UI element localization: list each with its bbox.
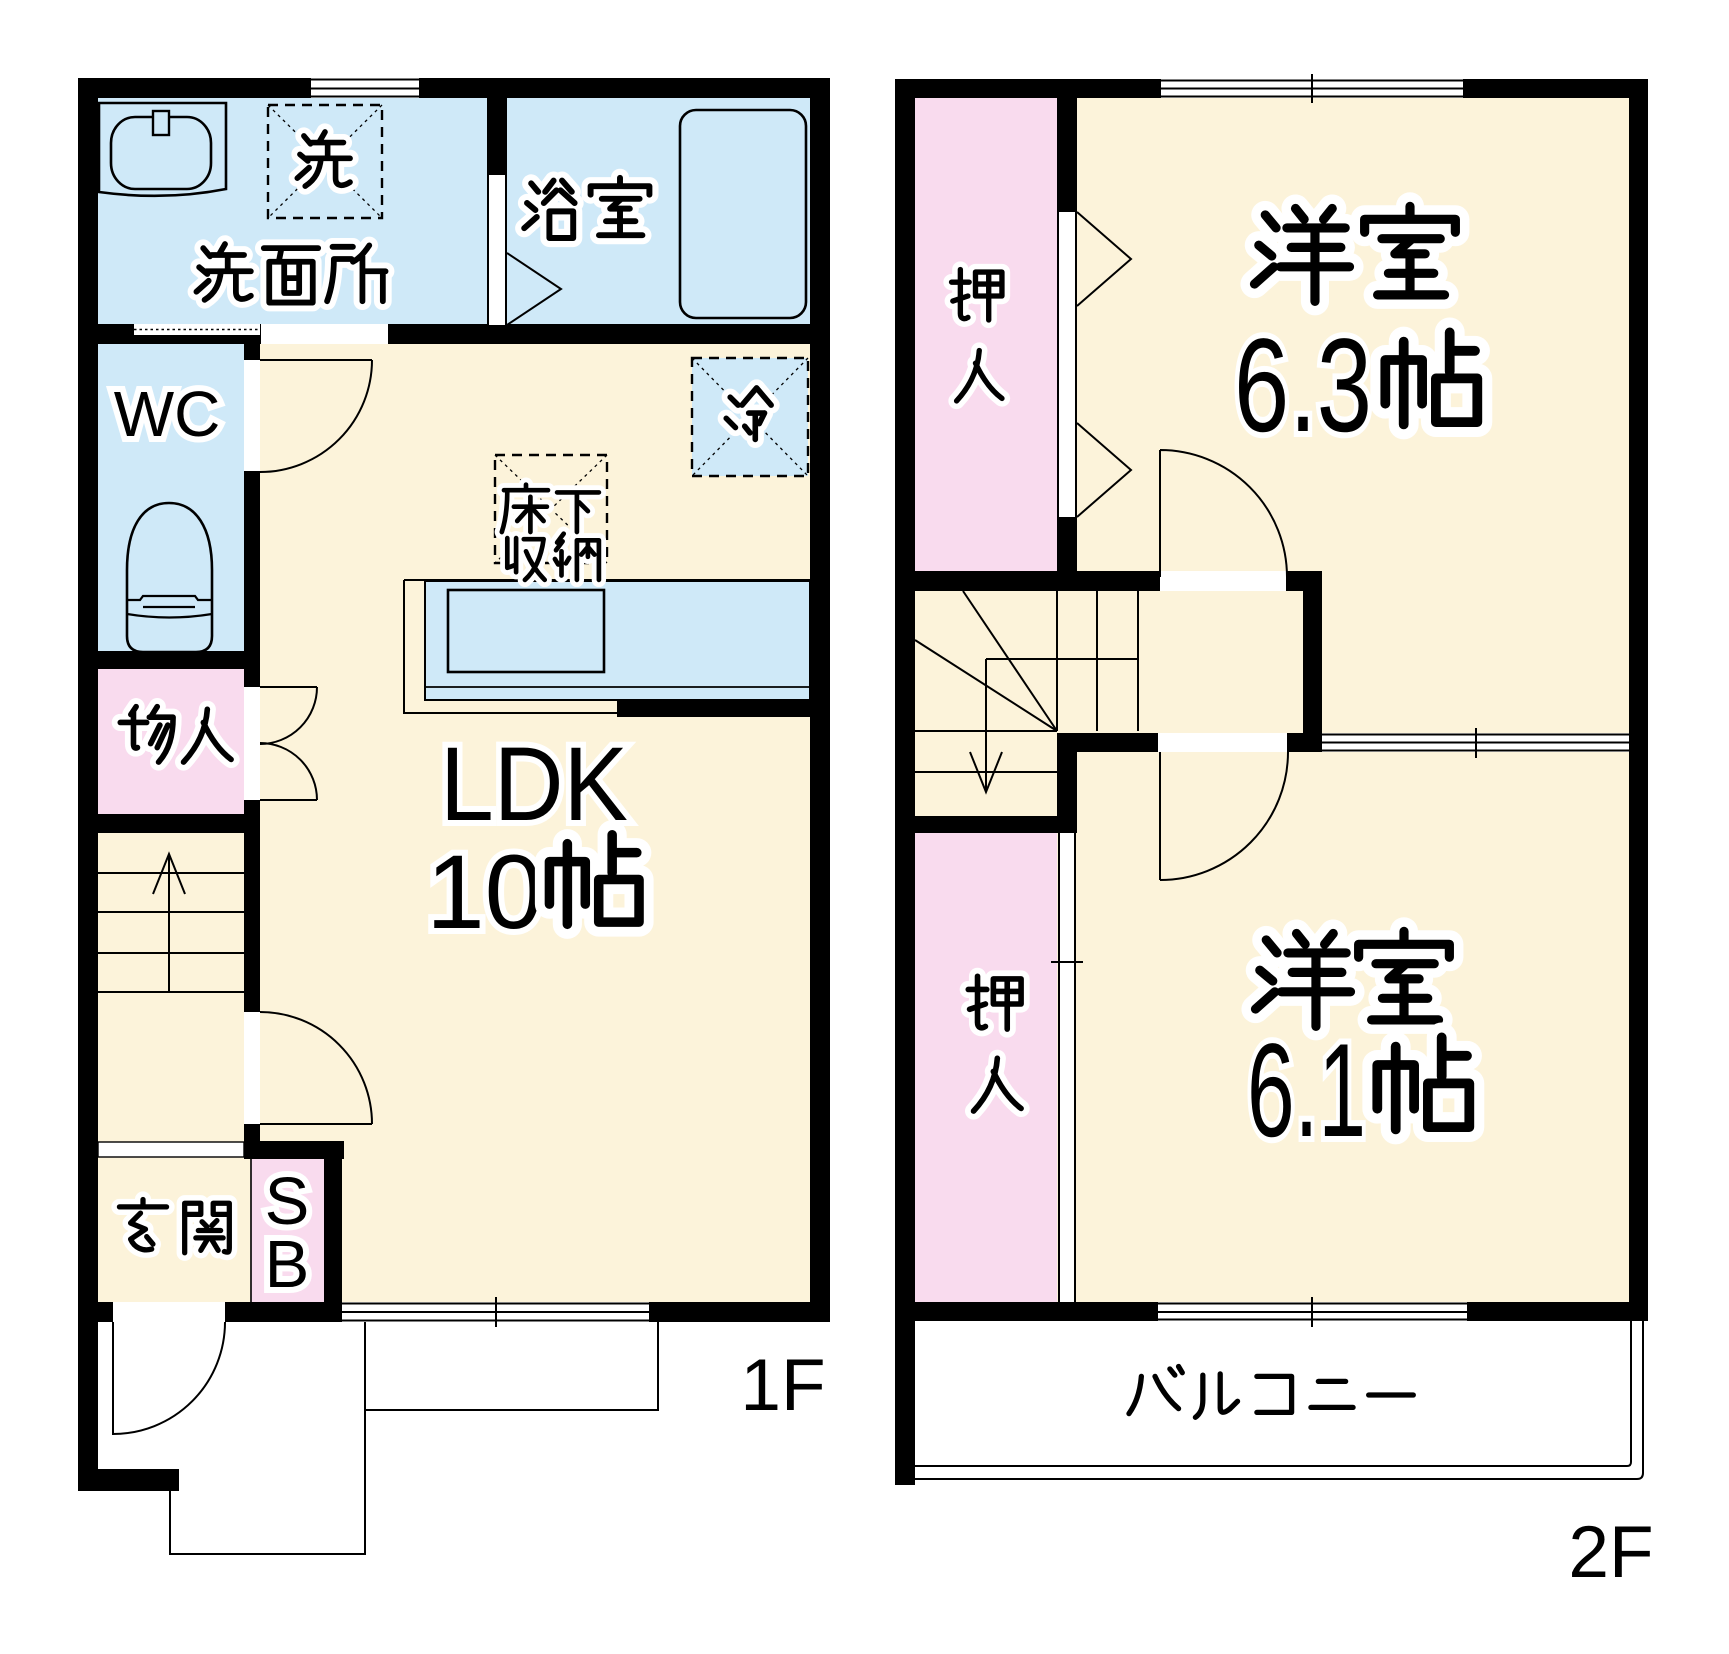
svg-text:LDK: LDK bbox=[440, 726, 628, 843]
svg-text:2F: 2F bbox=[1568, 1512, 1653, 1593]
svg-text:6.1: 6.1 bbox=[1247, 1017, 1366, 1165]
svg-text:10: 10 bbox=[426, 834, 543, 951]
svg-text:6.3: 6.3 bbox=[1234, 312, 1372, 460]
svg-text:WC: WC bbox=[114, 378, 221, 450]
svg-text:B: B bbox=[265, 1227, 310, 1302]
svg-text:1F: 1F bbox=[740, 1345, 825, 1426]
